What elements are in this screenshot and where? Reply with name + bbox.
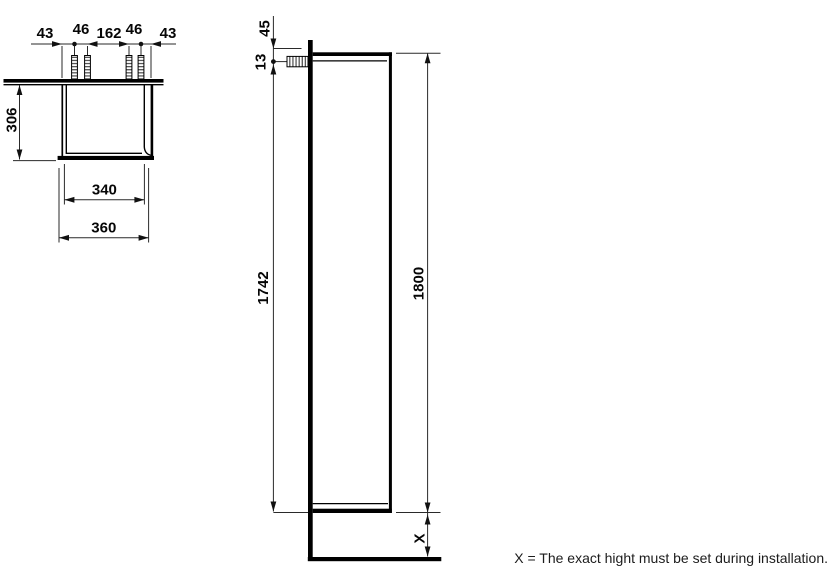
side-view-drawing: 45 13 1742 1800 X bbox=[253, 16, 442, 561]
arrow-right-icon bbox=[139, 235, 149, 241]
cabinet-body-side-view bbox=[313, 52, 392, 513]
arrow-left-icon bbox=[59, 235, 69, 241]
dim-label-45: 45 bbox=[257, 20, 274, 37]
dim-label-1800: 1800 bbox=[410, 267, 427, 300]
arrow-down-icon bbox=[425, 547, 431, 557]
technical-drawing-page: 43 46 162 46 43 bbox=[0, 0, 830, 584]
arrow-up-icon bbox=[271, 65, 277, 75]
arrow-right-icon bbox=[134, 197, 144, 203]
dim-chain-top: 43 46 162 46 43 bbox=[31, 21, 176, 78]
chain-dot-icon bbox=[271, 59, 276, 64]
cabinet-body-top-view bbox=[58, 85, 154, 160]
top-view-drawing: 43 46 162 46 43 bbox=[4, 21, 177, 243]
dim-label-43-right: 43 bbox=[160, 25, 177, 42]
dim-label-340: 340 bbox=[92, 182, 117, 199]
footnote: X = The exact hight must be set during i… bbox=[514, 550, 828, 566]
dim-label-13: 13 bbox=[253, 54, 270, 71]
dim-306: 306 bbox=[4, 85, 57, 161]
dim-360: 360 bbox=[59, 168, 149, 243]
chain-dot-icon bbox=[139, 42, 144, 47]
dim-label-46-right: 46 bbox=[126, 21, 143, 38]
arrow-left-icon bbox=[64, 197, 74, 203]
dim-340: 340 bbox=[64, 164, 144, 205]
dim-label-360: 360 bbox=[91, 220, 116, 237]
drawing-canvas: 43 46 162 46 43 bbox=[0, 0, 830, 584]
chain-dot-icon bbox=[72, 42, 77, 47]
dim-label-306: 306 bbox=[4, 107, 21, 132]
dim-column-left: 45 13 1742 bbox=[253, 16, 309, 513]
arrow-down-icon bbox=[425, 503, 431, 513]
arrow-down-icon bbox=[17, 150, 23, 160]
arrow-right-icon bbox=[52, 41, 62, 47]
mounting-screws-top bbox=[72, 56, 144, 80]
screw-icon bbox=[138, 56, 144, 80]
dim-label-43-left: 43 bbox=[37, 25, 54, 42]
screw-icon bbox=[85, 56, 91, 80]
dim-label-1742: 1742 bbox=[255, 271, 272, 304]
arrow-up-icon bbox=[425, 515, 431, 525]
dim-label-162: 162 bbox=[96, 25, 121, 42]
back-panel bbox=[308, 40, 313, 557]
wall-plate bbox=[4, 79, 164, 85]
screw-icon bbox=[287, 56, 308, 66]
dim-label-x: X bbox=[412, 533, 429, 543]
dim-label-46-left: 46 bbox=[73, 21, 90, 38]
arrow-down-icon bbox=[271, 39, 277, 49]
mounting-screw-side bbox=[273, 56, 308, 66]
arrow-up-icon bbox=[425, 53, 431, 63]
floor-line bbox=[308, 557, 442, 561]
arrow-down-icon bbox=[271, 502, 277, 512]
screw-icon bbox=[126, 56, 132, 80]
arrow-up-icon bbox=[17, 85, 23, 95]
dim-column-right: 1800 X bbox=[396, 53, 441, 556]
screw-icon bbox=[72, 56, 78, 80]
